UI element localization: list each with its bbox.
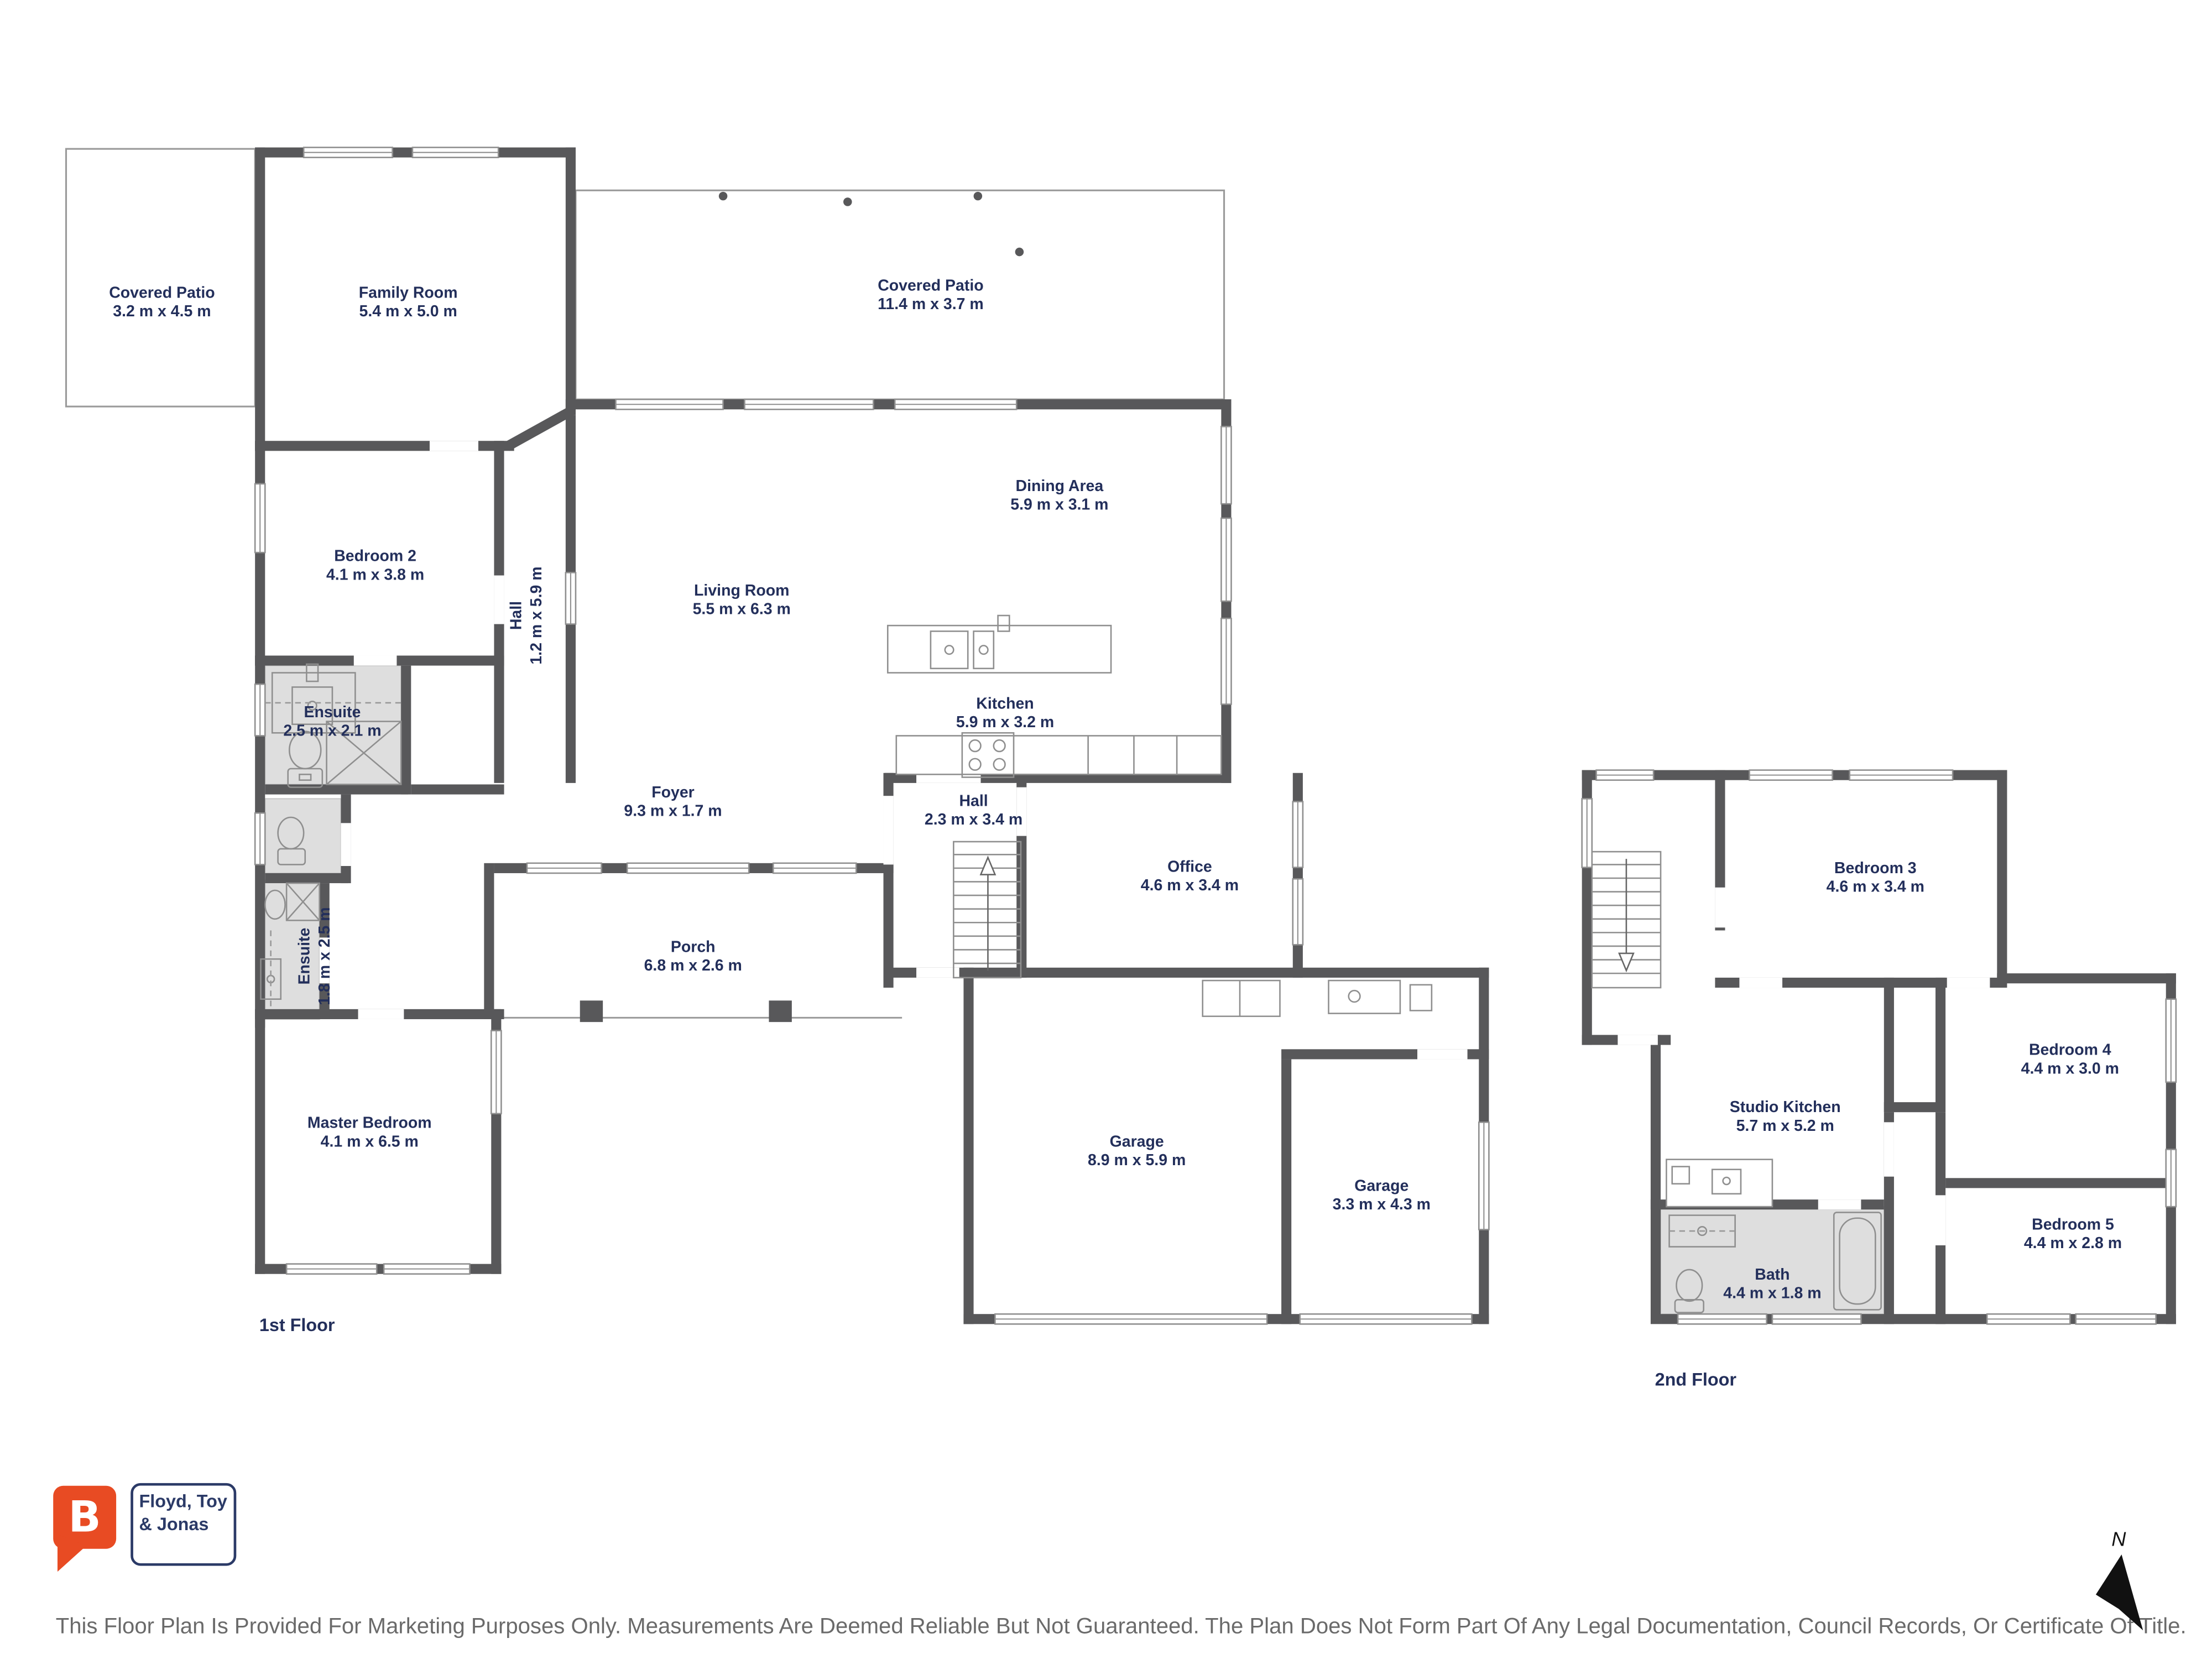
window xyxy=(1678,1314,1766,1324)
window xyxy=(1987,1314,2070,1324)
garage-door xyxy=(995,1314,1267,1324)
floor-plan-canvas: Covered Patio3.2 m x 4.5 m Family Room5.… xyxy=(0,0,2212,1659)
window xyxy=(255,813,265,864)
svg-text:11.4 m x 3.7 m: 11.4 m x 3.7 m xyxy=(878,295,984,313)
room-label-master-bedroom: Master Bedroom4.1 m x 6.5 m xyxy=(307,1114,432,1151)
svg-text:6.8 m x 2.6 m: 6.8 m x 2.6 m xyxy=(644,957,742,974)
svg-text:2.3 m x 3.4 m: 2.3 m x 3.4 m xyxy=(925,811,1022,828)
window xyxy=(413,148,498,158)
agency-name-line2: & Jonas xyxy=(139,1514,209,1534)
window xyxy=(566,572,576,624)
room-label-office: Office4.6 m x 3.4 m xyxy=(1141,858,1239,894)
window xyxy=(1221,426,1231,504)
room-label-bedroom-2: Bedroom 24.1 m x 3.8 m xyxy=(326,547,424,584)
garage-door xyxy=(1300,1314,1472,1324)
svg-text:8.9 m x 5.9 m: 8.9 m x 5.9 m xyxy=(1088,1151,1186,1169)
window xyxy=(255,484,265,552)
window xyxy=(1750,770,1833,780)
window xyxy=(627,863,749,873)
svg-text:4.4 m x 2.8 m: 4.4 m x 2.8 m xyxy=(2024,1234,2122,1252)
svg-text:9.3 m x 1.7 m: 9.3 m x 1.7 m xyxy=(624,802,722,820)
svg-text:Covered Patio: Covered Patio xyxy=(878,276,983,294)
svg-text:Dining Area: Dining Area xyxy=(1016,477,1104,495)
svg-text:Kitchen: Kitchen xyxy=(976,695,1034,712)
walls-floor1 xyxy=(255,148,1489,1324)
svg-text:Ensuite: Ensuite xyxy=(296,928,314,985)
floor1-title: 1st Floor xyxy=(259,1315,335,1335)
room-label-bedroom-4: Bedroom 44.4 m x 3.0 m xyxy=(2021,1041,2119,1078)
svg-text:Covered Patio: Covered Patio xyxy=(109,284,215,301)
window xyxy=(615,399,723,409)
svg-text:Family Room: Family Room xyxy=(359,284,458,301)
svg-text:Office: Office xyxy=(1167,858,1212,875)
window xyxy=(1221,618,1231,704)
svg-text:5.9 m x 3.2 m: 5.9 m x 3.2 m xyxy=(956,713,1054,731)
room-label-bedroom-3: Bedroom 34.6 m x 3.4 m xyxy=(1827,859,1924,896)
svg-text:4.4 m x 3.0 m: 4.4 m x 3.0 m xyxy=(2021,1060,2119,1077)
patio-post-dot xyxy=(974,192,983,201)
svg-text:1.2 m x 5.9 m: 1.2 m x 5.9 m xyxy=(528,566,545,664)
svg-text:Bedroom 3: Bedroom 3 xyxy=(1834,859,1917,877)
svg-text:1.8 m x 2.5 m: 1.8 m x 2.5 m xyxy=(316,907,333,1005)
room-label-bedroom-5: Bedroom 54.4 m x 2.8 m xyxy=(2024,1215,2122,1252)
room-label-covered-patio-2: Covered Patio11.4 m x 3.7 m xyxy=(878,276,984,313)
room-label-hall-2: Hall2.3 m x 3.4 m xyxy=(925,792,1022,828)
window xyxy=(1850,770,1953,780)
window xyxy=(1772,1314,1861,1324)
patio-post-dot xyxy=(1015,248,1024,257)
agency-name-line1: Floyd, Toy xyxy=(139,1491,227,1511)
svg-text:Bath: Bath xyxy=(1755,1266,1790,1284)
room-label-studio-kitchen: Studio Kitchen5.7 m x 5.2 m xyxy=(1730,1098,1841,1135)
kitchen-counter xyxy=(896,735,1222,774)
svg-text:5.5 m x 6.3 m: 5.5 m x 6.3 m xyxy=(693,600,791,618)
window xyxy=(304,148,392,158)
room-label-hall-1: Hall1.2 m x 5.9 m xyxy=(508,566,545,664)
svg-text:4.1 m x 3.8 m: 4.1 m x 3.8 m xyxy=(326,566,424,583)
window xyxy=(773,863,856,873)
porch-post xyxy=(769,1000,791,1022)
window xyxy=(1479,1122,1489,1229)
window xyxy=(1582,799,1592,867)
svg-text:Hall: Hall xyxy=(959,792,988,810)
svg-text:4.6 m x 3.4 m: 4.6 m x 3.4 m xyxy=(1141,877,1239,894)
laundry-bench xyxy=(1329,980,1432,1014)
room-label-garage-1: Garage8.9 m x 5.9 m xyxy=(1088,1133,1186,1169)
room-label-foyer: Foyer9.3 m x 1.7 m xyxy=(624,784,722,820)
svg-text:Master Bedroom: Master Bedroom xyxy=(307,1114,432,1132)
patio-post-dot xyxy=(719,192,728,201)
svg-text:Bedroom 2: Bedroom 2 xyxy=(334,547,416,565)
room-label-kitchen: Kitchen5.9 m x 3.2 m xyxy=(956,695,1054,731)
window xyxy=(744,399,873,409)
window xyxy=(2166,1150,2176,1207)
svg-text:Studio Kitchen: Studio Kitchen xyxy=(1730,1098,1841,1116)
window xyxy=(286,1264,377,1274)
svg-text:Foyer: Foyer xyxy=(651,784,695,801)
stairs-up xyxy=(953,842,1021,978)
svg-text:4.1 m x 6.5 m: 4.1 m x 6.5 m xyxy=(321,1133,419,1150)
svg-text:5.7 m x 5.2 m: 5.7 m x 5.2 m xyxy=(1736,1117,1834,1135)
svg-text:Bedroom 4: Bedroom 4 xyxy=(2029,1041,2111,1059)
room-label-garage-2: Garage3.3 m x 4.3 m xyxy=(1333,1177,1431,1214)
svg-text:Garage: Garage xyxy=(1110,1133,1164,1150)
floor2-title: 2nd Floor xyxy=(1655,1370,1737,1390)
stairs-down xyxy=(1592,852,1661,988)
window xyxy=(1221,518,1231,601)
svg-text:Porch: Porch xyxy=(671,938,716,956)
room-label-living-room: Living Room5.5 m x 6.3 m xyxy=(693,582,791,618)
porch-post xyxy=(580,1000,603,1022)
svg-text:4.4 m x 1.8 m: 4.4 m x 1.8 m xyxy=(1723,1285,1821,1302)
svg-text:4.6 m x 3.4 m: 4.6 m x 3.4 m xyxy=(1827,878,1924,896)
agency-logo: B Floyd, Toy & Jonas xyxy=(53,1484,235,1572)
window xyxy=(1293,879,1303,945)
logo-bubble-icon: B xyxy=(53,1486,116,1572)
window xyxy=(384,1264,469,1274)
kitchen-island xyxy=(888,615,1111,673)
svg-text:3.3 m x 4.3 m: 3.3 m x 4.3 m xyxy=(1333,1196,1431,1213)
window xyxy=(2076,1314,2156,1324)
svg-text:Hall: Hall xyxy=(508,601,525,630)
window xyxy=(491,1031,501,1114)
svg-text:3.2 m x 4.5 m: 3.2 m x 4.5 m xyxy=(113,302,211,320)
svg-text:Garage: Garage xyxy=(1354,1177,1408,1195)
window xyxy=(1293,802,1303,868)
svg-text:5.9 m x 3.1 m: 5.9 m x 3.1 m xyxy=(1010,495,1108,513)
north-label: N xyxy=(2111,1528,2126,1551)
window xyxy=(1597,770,1654,780)
window xyxy=(2166,999,2176,1082)
window xyxy=(255,684,265,735)
svg-text:Living Room: Living Room xyxy=(694,582,789,599)
room-label-family-room: Family Room5.4 m x 5.0 m xyxy=(359,284,458,320)
window xyxy=(527,863,602,873)
room-label-dining-area: Dining Area5.9 m x 3.1 m xyxy=(1010,477,1108,514)
patio-outlines xyxy=(66,149,1224,1018)
studio-kitchen-counter xyxy=(1666,1160,1772,1207)
svg-text:B: B xyxy=(69,1493,101,1542)
disclaimer-text: This Floor Plan Is Provided For Marketin… xyxy=(56,1613,2187,1638)
svg-text:Ensuite: Ensuite xyxy=(304,703,361,721)
svg-text:5.4 m x 5.0 m: 5.4 m x 5.0 m xyxy=(359,302,457,320)
window xyxy=(895,399,1016,409)
svg-text:Bedroom 5: Bedroom 5 xyxy=(2032,1215,2114,1233)
svg-text:2.5 m x 2.1 m: 2.5 m x 2.1 m xyxy=(283,722,381,739)
patio-post-dot xyxy=(843,197,852,206)
room-label-porch: Porch6.8 m x 2.6 m xyxy=(644,938,742,974)
room-label-covered-patio-1: Covered Patio3.2 m x 4.5 m xyxy=(109,284,215,320)
garage-bench xyxy=(1203,980,1280,1016)
